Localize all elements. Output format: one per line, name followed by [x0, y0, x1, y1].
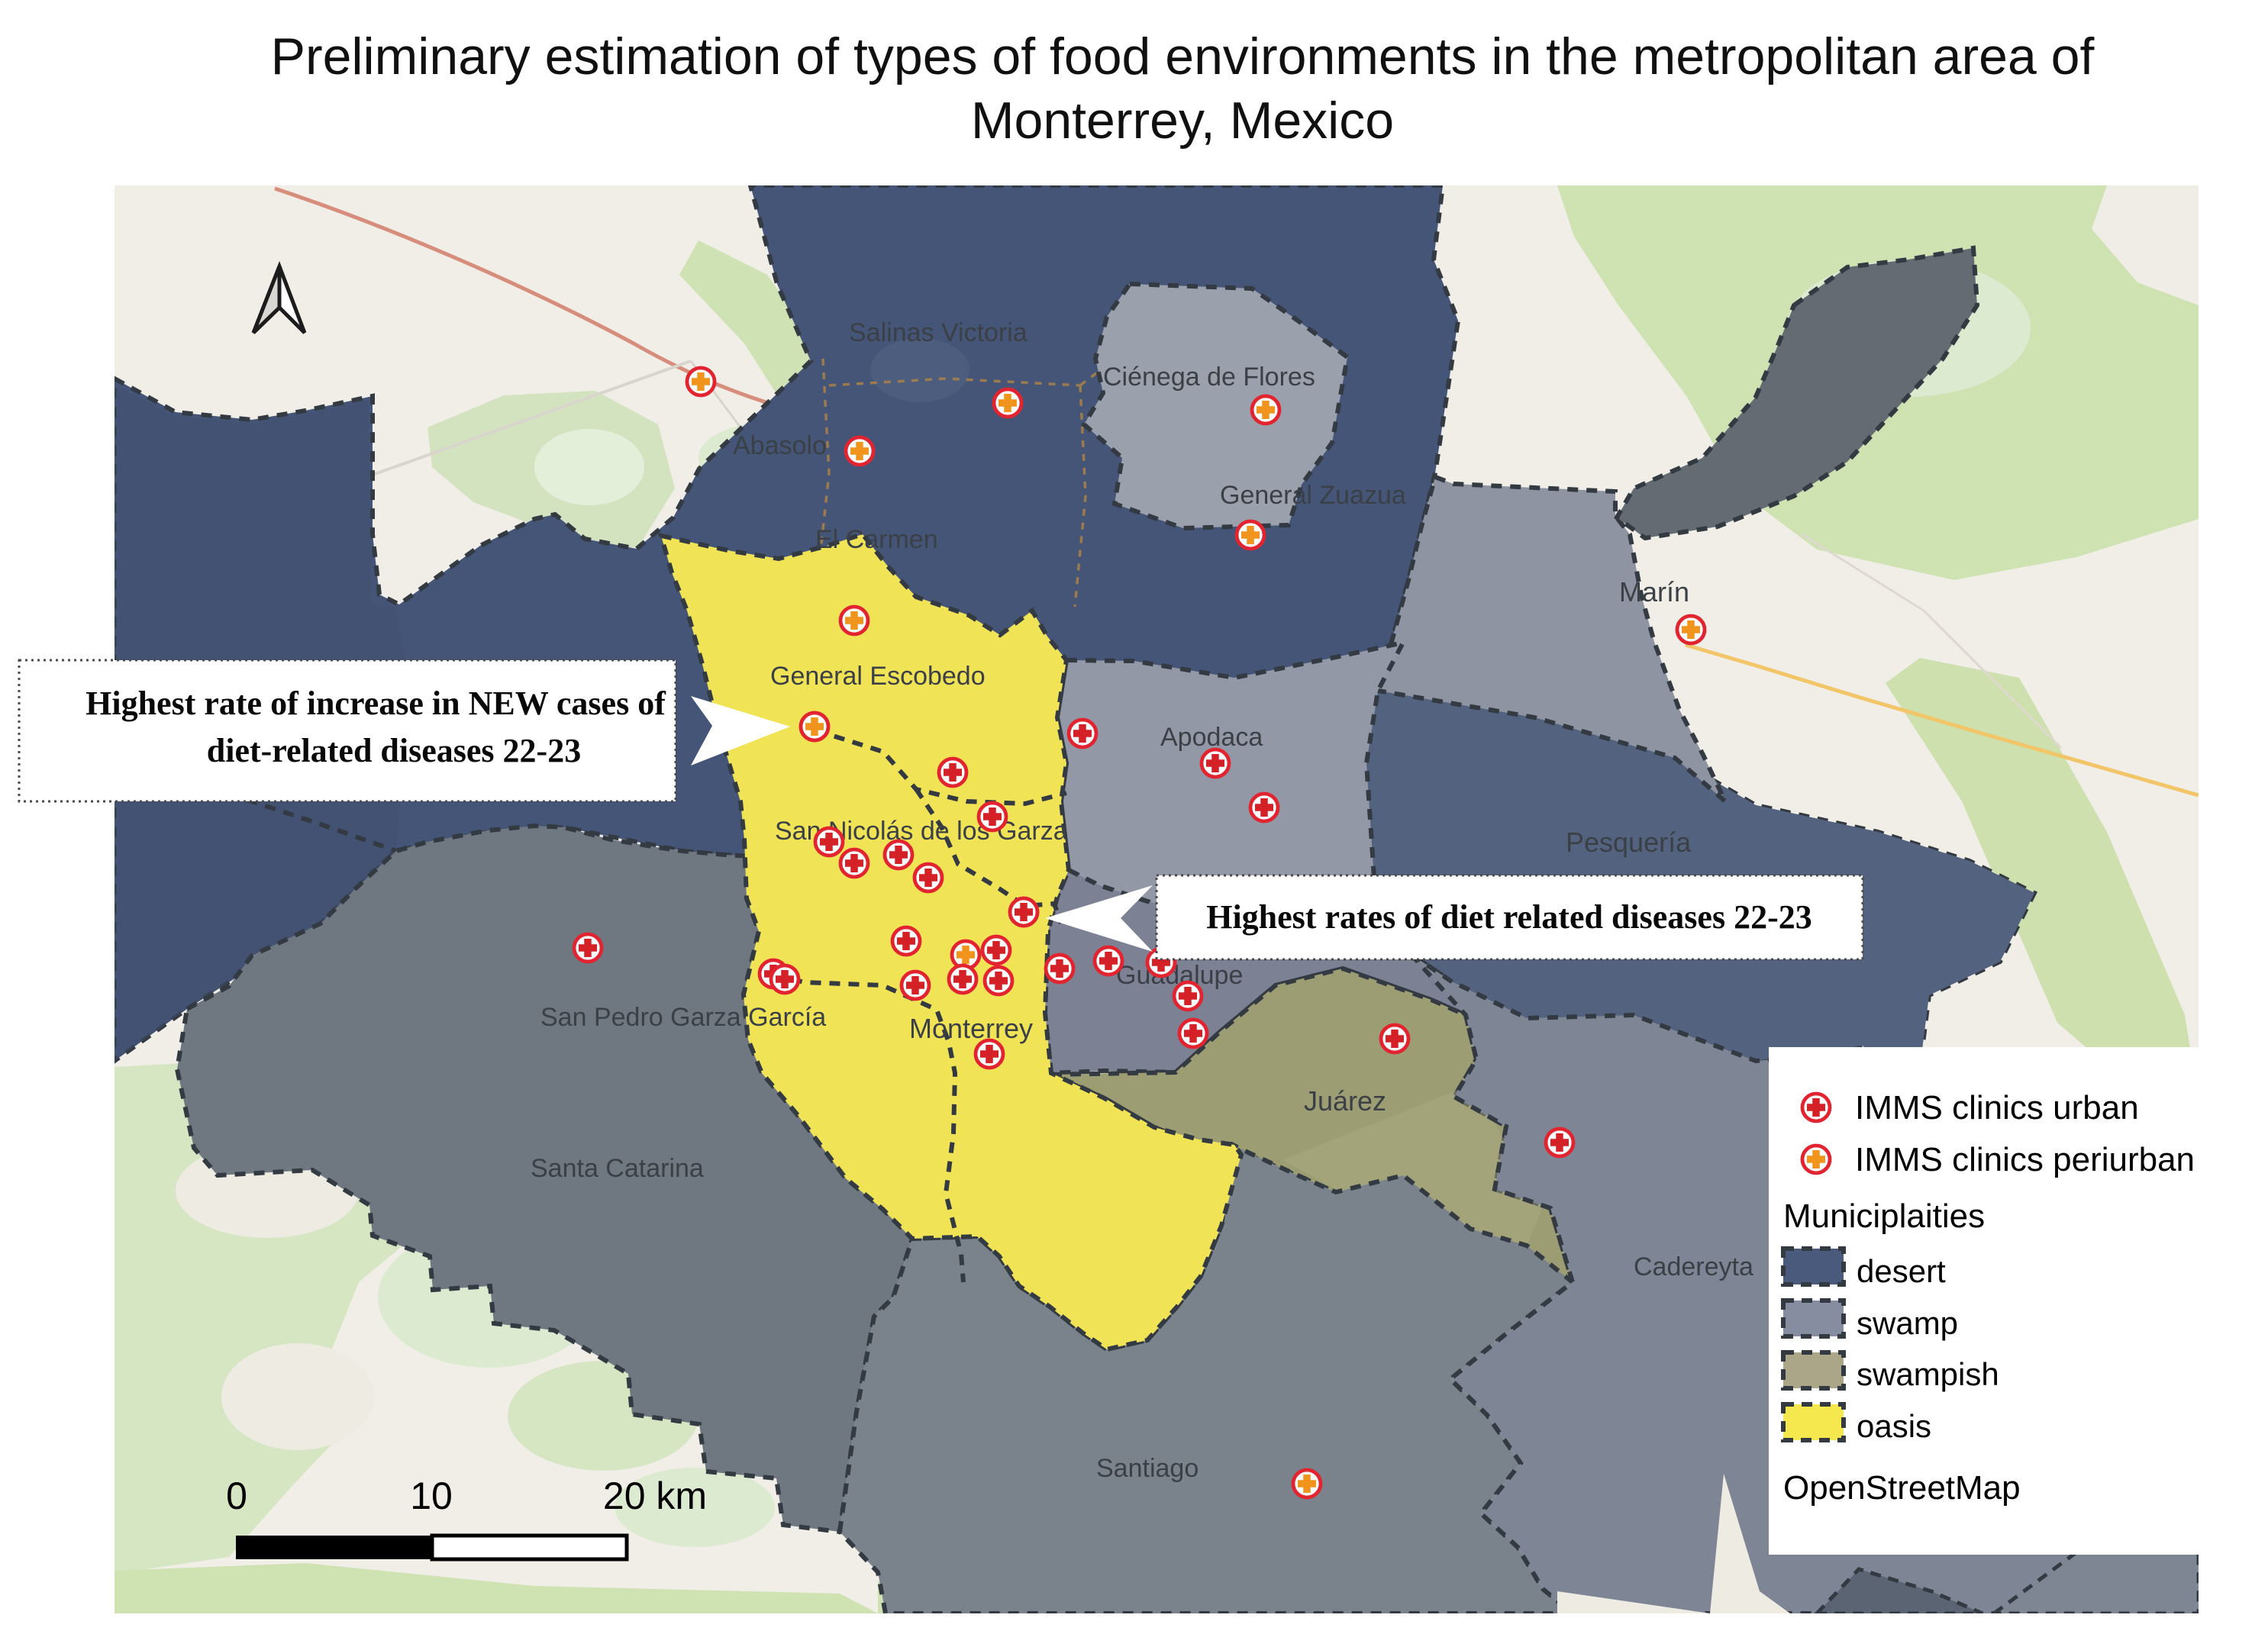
- svg-text:IMMS clinics periurban: IMMS clinics periurban: [1855, 1141, 2195, 1178]
- svg-text:General Escobedo: General Escobedo: [770, 662, 986, 691]
- svg-text:OpenStreetMap: OpenStreetMap: [1783, 1469, 2021, 1507]
- svg-text:Apodaca: Apodaca: [1160, 723, 1263, 752]
- svg-text:Preliminary estimation of type: Preliminary estimation of types of food …: [271, 27, 2095, 85]
- svg-text:San Pedro Garza García: San Pedro Garza García: [540, 1003, 826, 1032]
- svg-text:swampish: swampish: [1857, 1356, 1999, 1392]
- svg-text:Highest rate of increase in NE: Highest rate of increase in NEW cases of: [85, 685, 666, 722]
- svg-text:desert: desert: [1857, 1253, 1946, 1289]
- svg-text:Cadereyta: Cadereyta: [1634, 1252, 1753, 1281]
- svg-text:Salinas Victoria: Salinas Victoria: [849, 318, 1028, 347]
- svg-text:swamp: swamp: [1857, 1305, 1958, 1341]
- svg-text:Ciénega de Flores: Ciénega de Flores: [1103, 363, 1315, 392]
- svg-text:diet-related diseases 22-23: diet-related diseases 22-23: [207, 732, 581, 769]
- svg-text:IMMS clinics urban: IMMS clinics urban: [1855, 1089, 2139, 1126]
- svg-text:Municiplaities: Municiplaities: [1783, 1197, 1985, 1235]
- svg-text:Juárez: Juárez: [1304, 1085, 1386, 1117]
- svg-text:Abasolo: Abasolo: [733, 431, 827, 460]
- svg-text:20 km: 20 km: [603, 1475, 707, 1517]
- svg-text:Highest rates of diet related: Highest rates of diet related diseases 2…: [1206, 898, 1812, 936]
- svg-text:Marín: Marín: [1619, 576, 1689, 608]
- svg-text:0: 0: [226, 1475, 247, 1517]
- svg-text:Pesquería: Pesquería: [1566, 827, 1692, 858]
- svg-text:General Zuazua: General Zuazua: [1220, 481, 1406, 510]
- svg-text:oasis: oasis: [1857, 1408, 1931, 1444]
- svg-text:Santiago: Santiago: [1096, 1454, 1199, 1483]
- svg-text:10: 10: [410, 1475, 453, 1517]
- svg-text:Monterrey: Monterrey: [909, 1013, 1033, 1044]
- svg-text:El Carmen: El Carmen: [815, 525, 938, 554]
- svg-text:Santa Catarina: Santa Catarina: [531, 1154, 704, 1183]
- svg-text:Monterrey, Mexico: Monterrey, Mexico: [971, 92, 1394, 150]
